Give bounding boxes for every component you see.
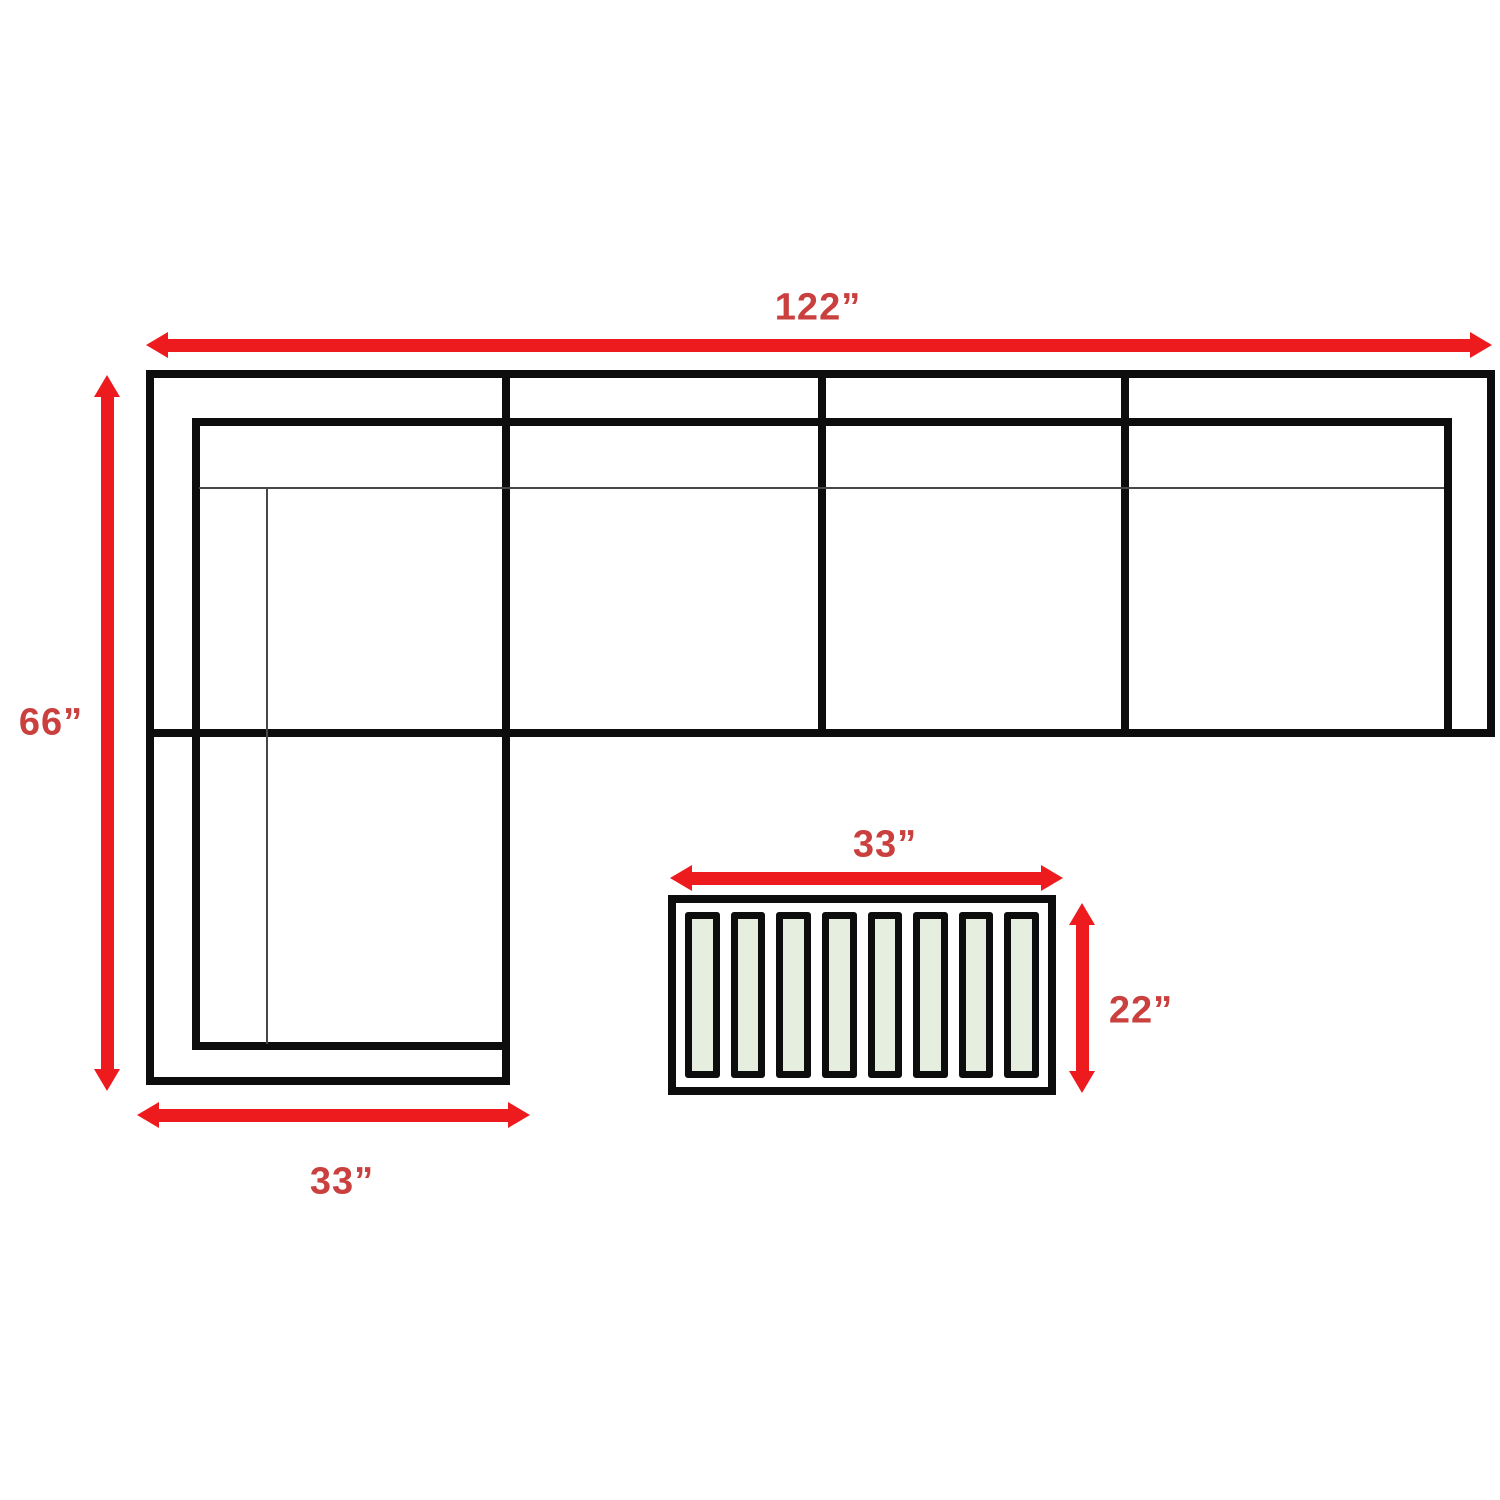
arrow-shaft [153,1109,514,1122]
arrowhead-down-icon [1069,1071,1095,1093]
table-depth-dimension-label: 22” [1109,990,1173,1033]
chaise-width-dimension-arrow [137,1102,530,1128]
table-slat [959,912,994,1078]
sofa-seat-divider-1 [818,370,826,737]
arrow-shaft [162,339,1476,352]
sofa-armrest-line-left [192,418,200,1050]
table-width-dimension-label: 33” [853,824,917,867]
arrowhead-right-icon [1041,865,1063,891]
table-slat [776,912,811,1078]
sofa-chaise-column-outline [146,370,510,1085]
table-slat [913,912,948,1078]
arrow-shaft [101,391,114,1075]
sofa-width-dimension-label: 122” [775,287,861,330]
coffee-table [668,895,1056,1095]
chaise-width-dimension-label: 33” [310,1161,374,1204]
sofa-width-dimension-arrow [146,332,1492,358]
arrowhead-right-icon [508,1102,530,1128]
sofa-cushion-seam-vertical [266,487,268,1044]
arrow-shaft [1076,919,1089,1077]
arrow-shaft [686,872,1047,885]
table-slat [822,912,857,1078]
arrowhead-right-icon [1470,332,1492,358]
table-slat [1004,912,1039,1078]
table-slat [685,912,720,1078]
table-depth-dimension-arrow [1069,903,1095,1093]
arrowhead-down-icon [94,1069,120,1091]
table-slat [868,912,903,1078]
table-slat [731,912,766,1078]
sofa-cushion-seam-horizontal [199,487,1444,489]
sofa-depth-dimension-arrow [94,375,120,1091]
sofa-armrest-line-right [1444,418,1452,737]
sofa-seat-divider-2 [1121,370,1129,737]
sofa-depth-dimension-label: 66” [19,702,83,745]
table-width-dimension-arrow [670,865,1063,891]
dimension-diagram: 122” 66” 33” 33” 22” [0,0,1500,1500]
sofa-chaise-front-line [192,1042,510,1050]
